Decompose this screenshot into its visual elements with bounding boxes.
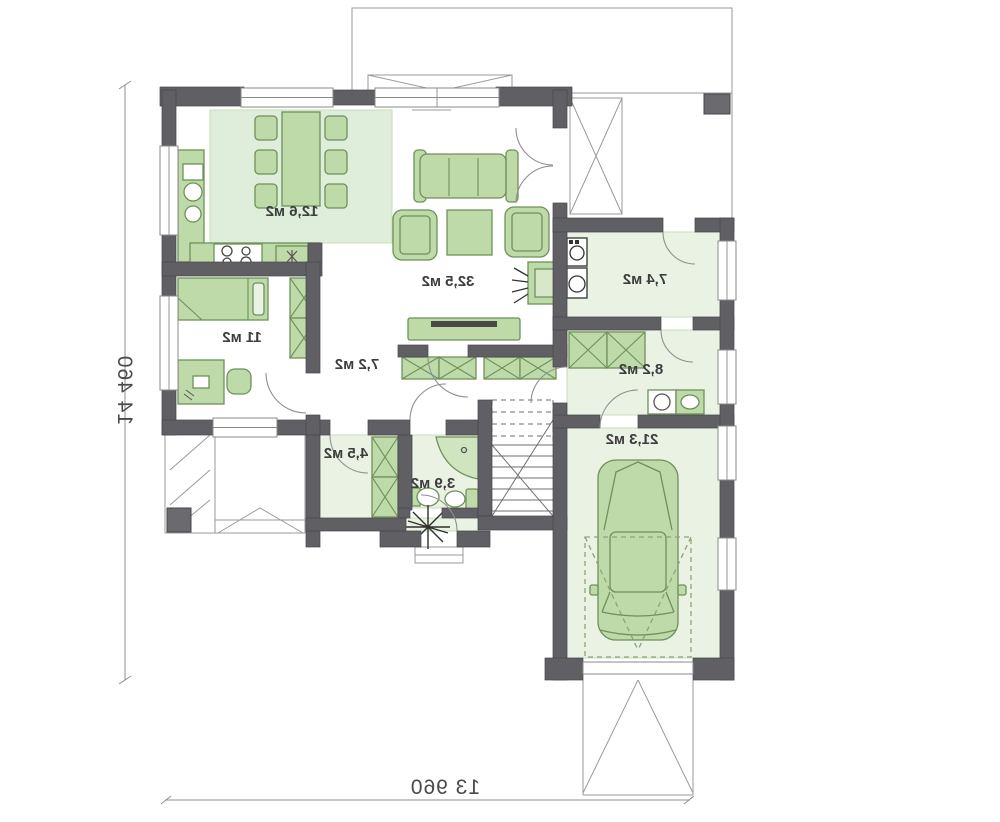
window [718, 350, 736, 404]
roof-outline [352, 8, 732, 218]
car [590, 460, 686, 640]
entry-steps [415, 547, 463, 563]
window [213, 418, 277, 437]
window [160, 146, 178, 235]
utility-appliances [567, 238, 587, 298]
dimension-label-height: 14 460 [113, 355, 136, 425]
sofa [414, 150, 518, 202]
tv-stand [408, 318, 520, 340]
window [241, 88, 333, 107]
driveway [583, 680, 693, 795]
coffee-table [447, 210, 492, 255]
room-label-hall: 7,2 м2 [335, 356, 379, 373]
room-label-bathroom: 3,9 м2 [411, 475, 455, 492]
window [718, 241, 736, 300]
floor-plan-page: 12,6 м2 32,5 м2 11 м2 7,2 м2 7,4 м2 8,2 … [0, 0, 1000, 822]
washing-machine [648, 390, 704, 414]
dining-set [255, 112, 347, 208]
porch-column [167, 508, 191, 532]
room-label-kitchen: 12,6 м2 [266, 203, 319, 220]
floor-plan-drawing: 12,6 м2 32,5 м2 11 м2 7,2 м2 7,4 м2 8,2 … [0, 0, 1000, 822]
bed [178, 278, 268, 320]
desk-and-chair [178, 360, 251, 404]
tv [431, 321, 497, 327]
wardrobe-closets [372, 437, 398, 517]
room-label-bedroom: 11 м2 [222, 329, 261, 346]
garage-door [583, 662, 693, 674]
room-label-corridor: 8,2 м2 [619, 361, 663, 378]
vestibule-floor [398, 518, 478, 531]
room-label-wardrobe: 4,5 м2 [324, 445, 368, 462]
window [375, 88, 499, 107]
chimney [704, 94, 730, 114]
staircase [492, 400, 553, 516]
hall-wardrobes [402, 357, 556, 379]
room-label-utility: 7,4 м2 [623, 271, 667, 288]
window [160, 296, 178, 390]
room-label-living: 32,5 м2 [422, 273, 475, 290]
window [718, 426, 736, 480]
window [718, 538, 736, 590]
dimension-label-width: 13 960 [410, 776, 480, 799]
room-label-garage: 21,3 м2 [606, 431, 659, 448]
